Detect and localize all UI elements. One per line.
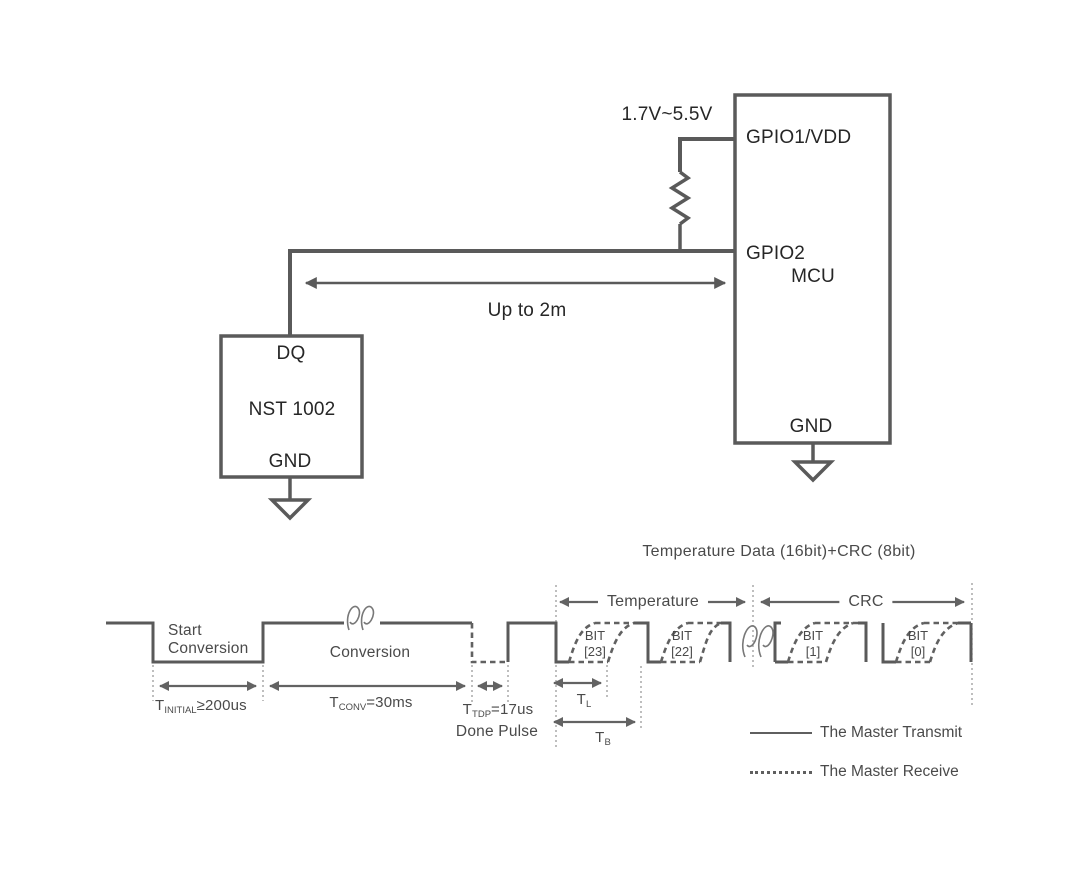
diagram-page: 1.7V~5.5V GPIO1/VDD GPIO2 MCU GND DQ NST… <box>0 0 1089 869</box>
bit-label-0: BIT [0] <box>908 628 928 659</box>
legend-receive-label: The Master Receive <box>820 763 959 781</box>
legend-transmit-label: The Master Transmit <box>820 724 962 742</box>
break-squiggle-conversion <box>348 607 374 630</box>
section-label-crc: CRC <box>839 593 892 611</box>
param-t-l: TL <box>577 691 592 710</box>
phase-start-conversion: Start Conversion <box>168 622 248 658</box>
ground-symbol-mcu <box>795 443 831 480</box>
param-t-tdp: TTDP=17us <box>463 701 534 720</box>
phase-conversion: Conversion <box>330 644 410 662</box>
sensor-pin-dq: DQ <box>277 343 306 365</box>
param-t-initial: TINITIAL≥200us <box>155 697 247 716</box>
legend-dotted-line-sample <box>750 771 812 774</box>
legend-item-receive: The Master Receive <box>750 763 959 781</box>
bit-label-23: BIT [23] <box>584 628 606 659</box>
cable-length-label: Up to 2m <box>488 300 567 322</box>
supply-voltage-label: 1.7V~5.5V <box>621 104 712 126</box>
done-pulse-label: Done Pulse <box>456 723 538 741</box>
mcu-pin-gpio2: GPIO2 <box>746 243 805 265</box>
timing-title: Temperature Data (16bit)+CRC (8bit) <box>642 543 915 561</box>
legend-solid-line-sample <box>750 732 812 734</box>
legend-item-transmit: The Master Transmit <box>750 724 962 742</box>
mcu-name: MCU <box>791 266 835 288</box>
section-label-temperature: Temperature <box>598 593 708 611</box>
param-t-b: TB <box>595 729 611 748</box>
sensor-pin-gnd: GND <box>269 451 312 473</box>
mcu-pin-gnd: GND <box>790 416 833 438</box>
param-t-conv: TCONV=30ms <box>329 694 412 713</box>
supply-wire <box>680 137 735 172</box>
bit-label-1: BIT [1] <box>803 628 823 659</box>
mcu-pin-gpio1-vdd: GPIO1/VDD <box>746 127 851 149</box>
sensor-name: NST 1002 <box>249 399 336 421</box>
resistor-symbol <box>672 172 688 251</box>
break-squiggle-bits <box>743 626 773 657</box>
data-wire <box>290 251 735 336</box>
ground-symbol-sensor <box>272 477 308 518</box>
bit-label-22: BIT [22] <box>671 628 693 659</box>
waveform-dashed <box>472 623 958 662</box>
